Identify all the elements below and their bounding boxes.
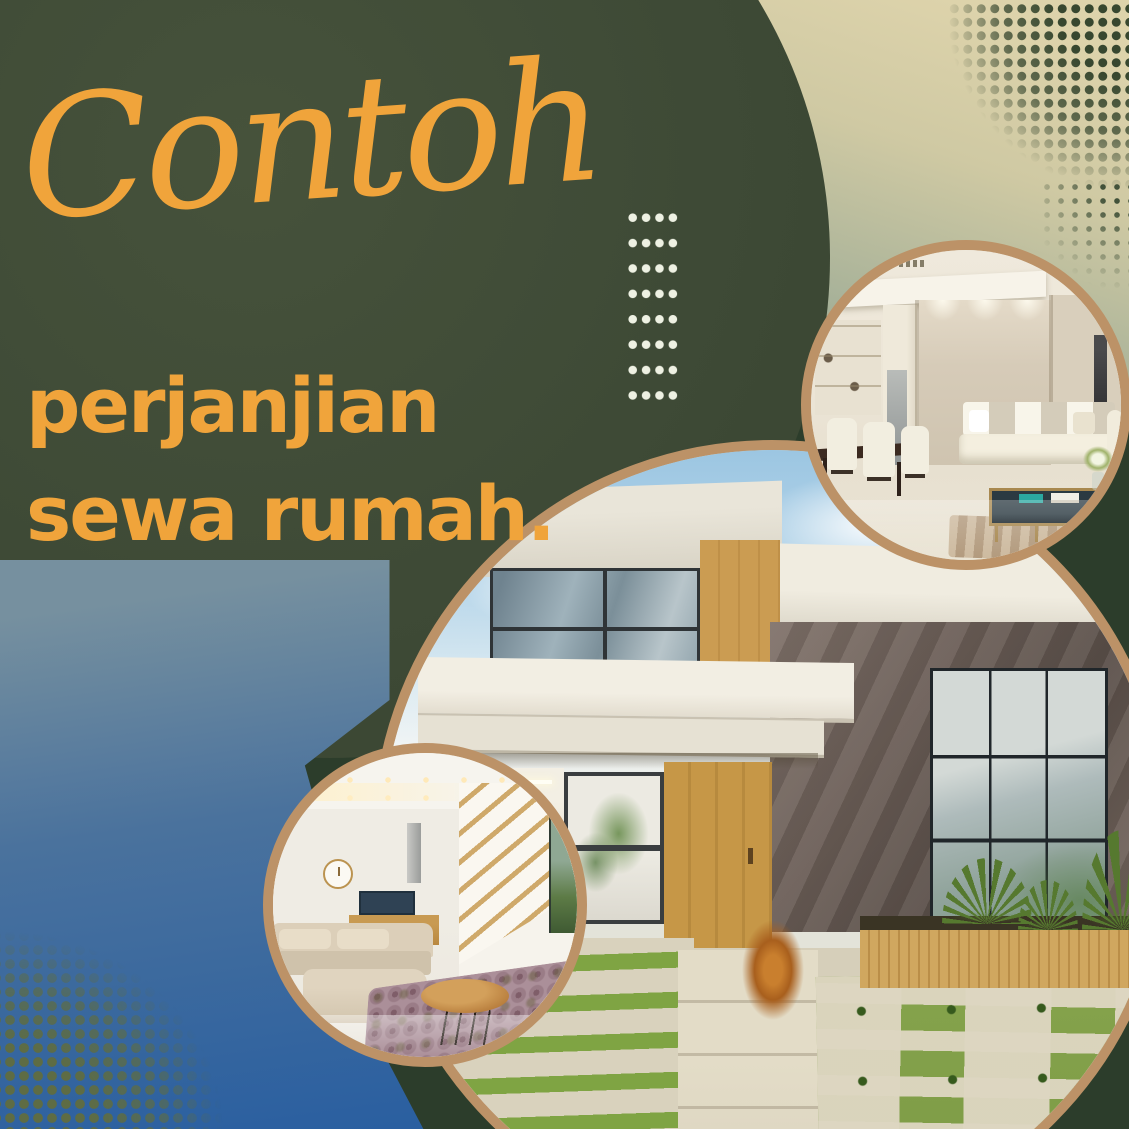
lawn-with-pavers (816, 971, 1129, 1129)
red-shrub (742, 920, 804, 1020)
pillow (1073, 412, 1095, 434)
photo-living-room-bottom-left (263, 743, 587, 1067)
kitchen-hood (407, 823, 421, 883)
poster-canvas: Contoh perjanjian sewa rumah. (0, 0, 1129, 1129)
dining-chair (863, 422, 895, 477)
pendant-light (311, 765, 319, 773)
living-room-scene (811, 250, 1121, 560)
house-canopy (418, 657, 854, 723)
pillow (969, 410, 989, 432)
pendant-light (293, 779, 302, 788)
subtitle-line-2: sewa rumah. (26, 460, 554, 568)
dining-chair (901, 426, 929, 474)
garden-window (549, 813, 579, 933)
white-dots-grid-icon (626, 205, 680, 409)
round-coffee-table (421, 979, 509, 1013)
floor-sheen (811, 500, 1121, 560)
photo-living-room-top-right (801, 240, 1129, 570)
wood-planter (860, 930, 1129, 988)
subtitle: perjanjian sewa rumah. (26, 352, 554, 568)
ceiling-vent (899, 260, 925, 267)
sofa-cushion (337, 929, 389, 949)
kitchen-window-strip (359, 891, 415, 915)
shelving-unit (815, 320, 881, 415)
headline-script: Contoh (10, 0, 594, 361)
staircase-room-scene (273, 753, 577, 1057)
wall-clock (323, 859, 353, 889)
dining-chair (827, 418, 857, 470)
floor-sheen (273, 1015, 577, 1057)
floor-lamp (1094, 335, 1107, 410)
door-handle (748, 848, 753, 864)
subtitle-line-1: perjanjian (26, 352, 554, 460)
ceiling-cove-light (281, 783, 471, 801)
vase (1092, 472, 1104, 490)
sofa-cushion (279, 929, 331, 949)
halftone-dots-icon-bottom-left (0, 912, 268, 1129)
flowers (1083, 446, 1113, 472)
